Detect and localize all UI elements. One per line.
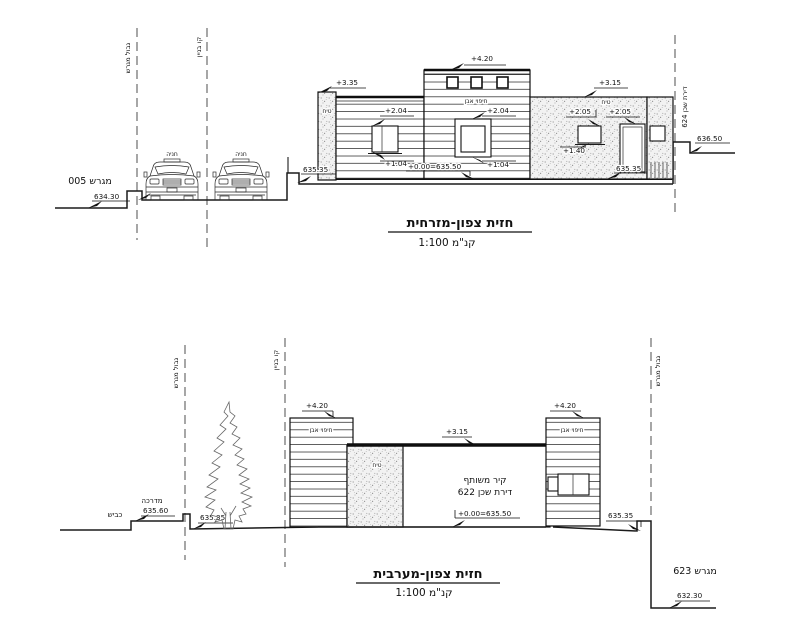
plaster-label-left: טיח bbox=[322, 108, 331, 115]
stone-pillar-right bbox=[546, 418, 600, 526]
clerestory-window-2 bbox=[471, 77, 482, 88]
plot-boundary-label-right: גבול מגרש bbox=[654, 355, 662, 386]
pillar-window-small bbox=[548, 477, 558, 491]
road-label: כביש bbox=[108, 510, 123, 519]
parking-label-2: חניה bbox=[235, 151, 247, 158]
level-mark-315: +3.15 bbox=[442, 427, 476, 445]
nw-title: חזית צפון-מערבית bbox=[373, 567, 482, 582]
svg-text:635.35: 635.35 bbox=[200, 513, 225, 522]
level-mark-sidewalk: 635.60 bbox=[135, 506, 175, 521]
svg-text:635.35: 635.35 bbox=[608, 511, 633, 520]
ground-profile-right bbox=[318, 521, 716, 608]
level-mark-335: +3.35 bbox=[318, 78, 366, 93]
stone-cladding-label: חיפוי אבן bbox=[464, 98, 487, 105]
svg-text:+2.04: +2.04 bbox=[385, 106, 407, 115]
building-line-label: קו בניין bbox=[195, 37, 203, 58]
ground-profile-left bbox=[60, 514, 318, 530]
svg-text:635.60: 635.60 bbox=[143, 506, 169, 515]
svg-text:+1.04: +1.04 bbox=[385, 159, 407, 168]
window-left bbox=[372, 126, 398, 152]
svg-text:+4.20: +4.20 bbox=[306, 401, 328, 410]
plaster-label-right: טיח bbox=[601, 99, 610, 106]
north-west-elevation: גבול מגרש קו בניין גבול מגרש כביש מדרכה … bbox=[60, 338, 717, 608]
sidewalk-label: מדרכה bbox=[141, 496, 162, 505]
level-mark-315: +3.15 bbox=[584, 78, 628, 97]
car-2 bbox=[213, 159, 269, 200]
clerestory-window-3 bbox=[497, 77, 508, 88]
svg-text:+4.20: +4.20 bbox=[471, 54, 493, 63]
level-mark-base-right: 635.35 bbox=[606, 511, 641, 531]
plot-623-label: מגרש 623 bbox=[673, 566, 717, 577]
svg-text:+2.04: +2.04 bbox=[487, 106, 509, 115]
plot-boundary-label-left: גבול מגרש bbox=[172, 357, 180, 388]
svg-text:634.30: 634.30 bbox=[94, 192, 120, 201]
level-mark-neighbor: 636.50 bbox=[689, 134, 730, 153]
nw-scale: קנ"מ 1:100 bbox=[395, 587, 452, 599]
car-1 bbox=[144, 159, 200, 200]
plaster-label: טיח bbox=[372, 462, 381, 469]
clerestory-window-1 bbox=[447, 77, 458, 88]
svg-text:+3.15: +3.15 bbox=[599, 78, 621, 87]
svg-text:635.35: 635.35 bbox=[616, 164, 641, 173]
window-right-b bbox=[650, 126, 665, 141]
pillar-window bbox=[558, 474, 589, 495]
ne-title: חזית צפון-מזרחית bbox=[407, 216, 514, 231]
level-mark-420: +4.20 bbox=[450, 54, 506, 70]
north-east-elevation: גבול מגרש קו בניין דירת שכן 624 מגרש 005… bbox=[55, 28, 735, 249]
svg-text:+3.35: +3.35 bbox=[336, 78, 358, 87]
level-mark-road: 634.30 bbox=[88, 192, 130, 208]
stone-pillar-left bbox=[290, 418, 353, 527]
svg-text:+2.05: +2.05 bbox=[609, 107, 631, 116]
shared-wall-text-1: קיר משותף bbox=[464, 476, 507, 486]
svg-text:632.30: 632.30 bbox=[677, 591, 703, 600]
window-middle bbox=[461, 126, 485, 152]
parking-level-arrow bbox=[138, 193, 151, 200]
neighbor-label: דירת שכן 624 bbox=[681, 86, 689, 127]
building-line-label: קו בניין bbox=[272, 350, 280, 371]
level-mark-plot-623: 632.30 bbox=[669, 591, 710, 608]
plaster-panel bbox=[347, 445, 403, 527]
window-right-a bbox=[578, 126, 601, 143]
parking-label-1: חניה bbox=[166, 151, 178, 158]
svg-text:636.50: 636.50 bbox=[697, 134, 723, 143]
neighbor-ground-step bbox=[673, 142, 735, 184]
svg-text:+0.00=635.50: +0.00=635.50 bbox=[458, 509, 512, 518]
svg-text:+2.05: +2.05 bbox=[569, 107, 591, 116]
ne-scale: קנ"מ 1:100 bbox=[418, 237, 475, 249]
svg-text:+3.15: +3.15 bbox=[446, 427, 468, 436]
shared-wall-text-2: דירת שכן 622 bbox=[458, 488, 513, 498]
stone-label-left: חיפוי אבן bbox=[309, 427, 332, 434]
svg-text:+4.20: +4.20 bbox=[554, 401, 576, 410]
drawing-sheet: גבול מגרש קו בניין דירת שכן 624 מגרש 005… bbox=[0, 0, 800, 640]
plot-005-label: מגרש 005 bbox=[68, 176, 112, 187]
level-mark-420-left: +4.20 bbox=[302, 401, 336, 418]
svg-text:635.35: 635.35 bbox=[303, 165, 328, 174]
elevations-svg: גבול מגרש קו בניין דירת שכן 624 מגרש 005… bbox=[0, 0, 800, 640]
level-mark-420-right: +4.20 bbox=[550, 401, 584, 418]
svg-text:+0.00=635.50: +0.00=635.50 bbox=[408, 162, 462, 171]
plot-boundary-label: גבול מגרש bbox=[124, 42, 132, 73]
stone-label-right: חיפוי אבן bbox=[560, 427, 583, 434]
cypress-tree bbox=[205, 402, 252, 529]
